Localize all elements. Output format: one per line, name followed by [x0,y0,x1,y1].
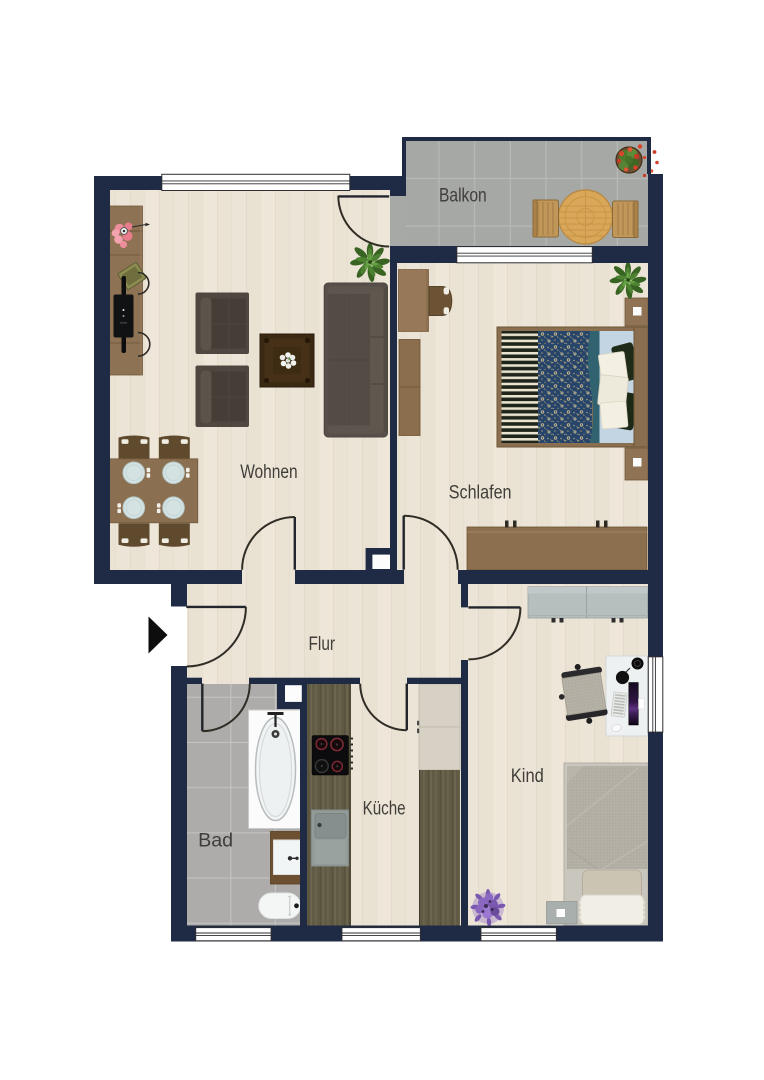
svg-text:Küche: Küche [363,799,406,820]
svg-text:Schlafen: Schlafen [449,482,512,503]
svg-text:Flur: Flur [309,634,336,655]
svg-text:Balkon: Balkon [439,185,487,206]
svg-text:Kind: Kind [511,766,544,787]
svg-text:Bad: Bad [198,830,233,851]
svg-text:Wohnen: Wohnen [240,462,297,483]
